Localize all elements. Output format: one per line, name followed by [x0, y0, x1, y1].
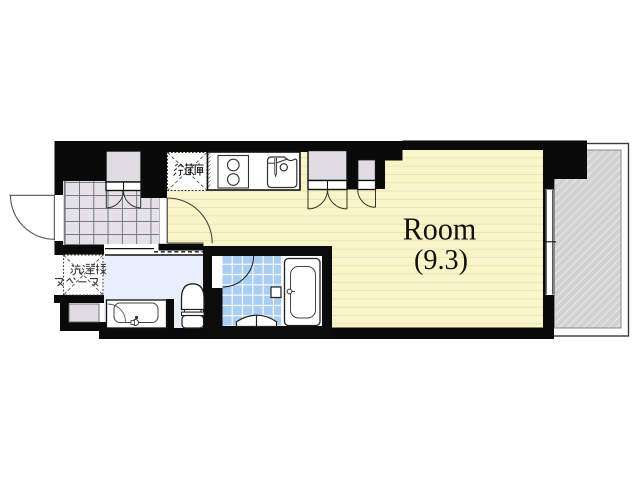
svg-text:(9.3): (9.3)	[414, 245, 468, 276]
svg-text:Room: Room	[403, 211, 477, 247]
